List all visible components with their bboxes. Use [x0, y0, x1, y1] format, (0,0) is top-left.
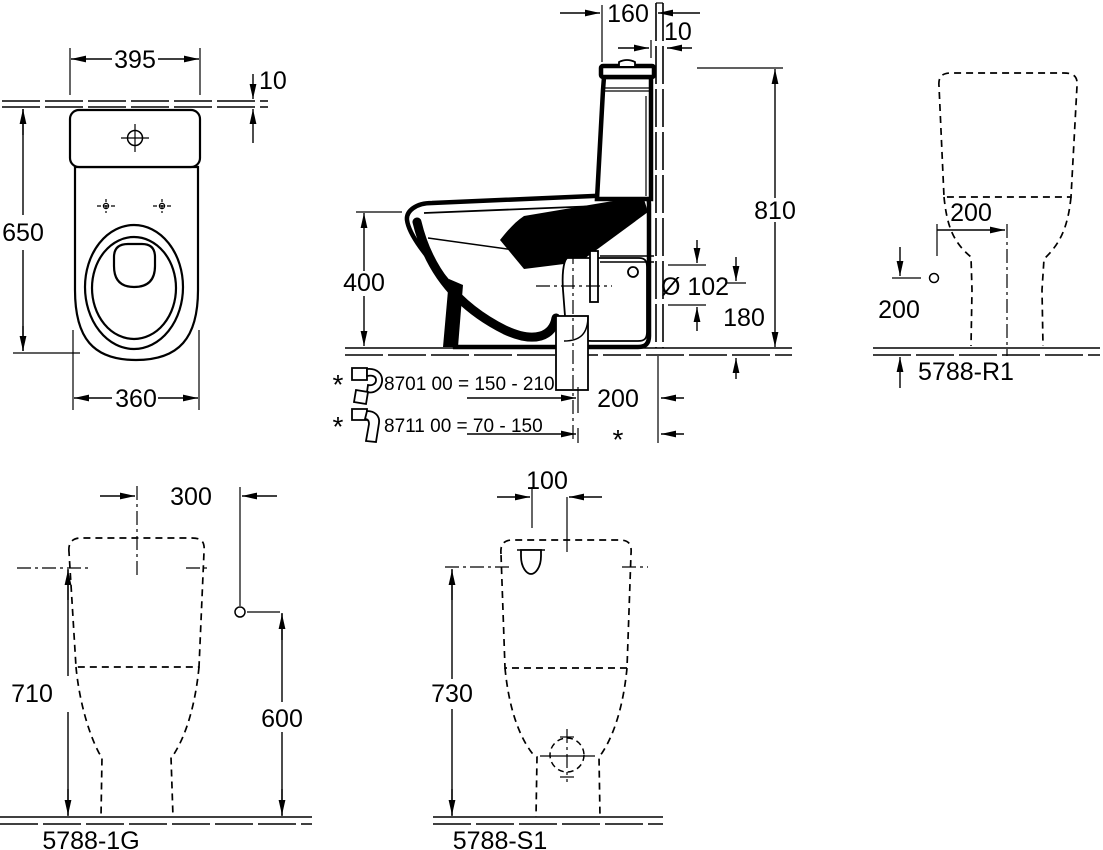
- variable-dim-asterisk: *: [613, 424, 624, 455]
- technical-drawing-page: 395 10 650 360: [0, 0, 1103, 850]
- connection-bend-icon: [352, 409, 379, 442]
- dim-text-810: 810: [754, 197, 796, 225]
- dim-1g-710: 710: [11, 569, 68, 816]
- g1-supply-point: [235, 607, 245, 617]
- dim-text-400: 400: [343, 269, 385, 297]
- accessory-text-8701: 8701 00 = 150 - 210: [384, 374, 555, 395]
- g1-cistern-outline: [69, 538, 204, 667]
- g1-body-right: [171, 667, 199, 817]
- side-view: 160 10 810 400 Ø 102: [333, 0, 796, 455]
- dim-text-395: 395: [114, 46, 156, 74]
- dim-text-100: 100: [526, 467, 568, 495]
- dim-plan-650: 650: [2, 109, 80, 353]
- asterisk-8711: *: [333, 411, 344, 442]
- accessory-row-8711: * 8711 00 = 70 - 150: [333, 409, 543, 442]
- s1-body-right: [599, 668, 627, 817]
- variant-view-s1: 100 730 5788-S1: [431, 467, 663, 850]
- model-label-s1: 5788-S1: [453, 827, 548, 850]
- dim-text-outlet-dia: Ø 102: [661, 273, 729, 301]
- dim-text-730: 730: [431, 680, 473, 708]
- dim-plan-395: 395: [70, 46, 200, 95]
- dim-r1-200-horizontal: 200: [937, 199, 1005, 256]
- dim-text-710: 710: [11, 680, 53, 708]
- accessory-text-8711: 8711 00 = 70 - 150: [384, 416, 543, 437]
- dim-text-10-plan: 10: [259, 67, 287, 95]
- dim-text-180: 180: [723, 304, 765, 332]
- dim-text-10-side: 10: [664, 18, 692, 46]
- dim-text-650: 650: [2, 219, 44, 247]
- r1-supply-point: [930, 274, 939, 283]
- dim-text-600: 600: [261, 705, 303, 733]
- dim-plan-10: 10: [253, 67, 287, 143]
- cistern-side: [597, 60, 654, 199]
- bowl-opening: [114, 244, 155, 287]
- dim-text-360: 360: [115, 385, 157, 413]
- dim-side-180: 180: [723, 257, 765, 379]
- floor-section-s1: [433, 817, 663, 824]
- model-label-r1: 5788-R1: [918, 358, 1014, 386]
- flush-valve-bar: [590, 251, 598, 302]
- plan-view: 395 10 650 360: [2, 46, 287, 413]
- s1-floor-outlet: [540, 729, 595, 782]
- floor-section-1g: [0, 817, 312, 824]
- variant-view-1g: 300 710 600 5788-1G: [0, 483, 312, 850]
- dim-1g-600: 600: [247, 612, 303, 816]
- rear-view-r1: 200 200 5788-R1: [873, 73, 1100, 388]
- dim-text-200-side: 200: [597, 385, 639, 413]
- dim-side-400: 400: [343, 212, 402, 346]
- dim-text-r1-200h: 200: [950, 199, 992, 227]
- model-label-1g: 5788-1G: [42, 827, 139, 850]
- s1-inlet-funnel: [517, 550, 545, 574]
- dim-s1-100: 100: [497, 467, 602, 497]
- cistern-lid: [601, 66, 654, 77]
- r1-body-right: [1042, 197, 1071, 346]
- floor-section-r1: [873, 348, 1100, 355]
- toilet-technical-drawing: 395 10 650 360: [0, 0, 1103, 850]
- fixing-hole: [628, 267, 638, 277]
- s1-body-left: [505, 668, 537, 817]
- cistern-tank: [597, 77, 651, 199]
- dim-text-r1-200v: 200: [878, 296, 920, 324]
- asterisk-8701: *: [333, 369, 344, 400]
- g1-body-left: [76, 667, 102, 817]
- dim-side-outlet-dia: Ø 102: [661, 240, 729, 331]
- dim-text-300: 300: [170, 483, 212, 511]
- dim-1g-300: 300: [100, 483, 277, 606]
- outlet-down-pipe: [556, 316, 588, 390]
- wall-section-plan: [2, 101, 268, 107]
- r1-cistern-outline: [939, 73, 1077, 197]
- dim-s1-730: 730: [431, 569, 473, 816]
- dim-text-160: 160: [607, 0, 649, 28]
- vario-bend-icon: [352, 368, 382, 404]
- flush-button: [619, 60, 635, 66]
